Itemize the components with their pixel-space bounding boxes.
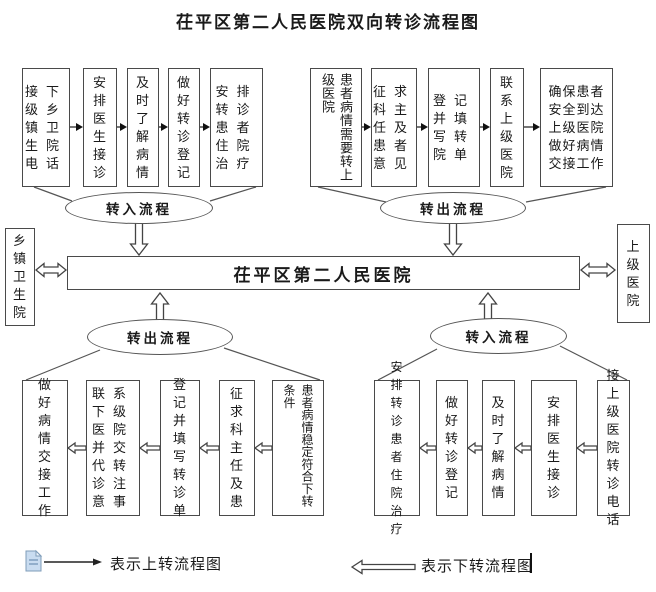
arrow-left-right-icon xyxy=(581,264,615,277)
arrow-down-icon xyxy=(445,223,462,255)
step-receive-upper-call: 接上级医院转诊电话 xyxy=(597,380,630,516)
arrow-left-icon xyxy=(68,443,86,453)
upper-hospital-box: 上级医院 xyxy=(617,224,650,323)
step-referral-register: 做好转诊登记 xyxy=(168,68,200,187)
step-contact-upper-hospital: 联系上级医院 xyxy=(490,68,524,187)
arrow-up-icon xyxy=(152,293,169,320)
step-receive-township-call: 接下级乡镇卫生院电话 xyxy=(22,68,70,187)
step-arrange-doctor: 安排医生接诊 xyxy=(83,68,117,187)
arrow-right-icon xyxy=(93,559,102,566)
arrow-left-icon xyxy=(515,443,531,453)
central-hospital-box: 茌平区第二人民医院 xyxy=(67,256,580,290)
arrow-left-icon xyxy=(200,443,219,453)
arrow-left-icon xyxy=(420,443,436,453)
text-cursor xyxy=(530,553,532,573)
arrow-right-icon xyxy=(203,123,210,131)
arrow-left-icon xyxy=(468,443,482,453)
arrow-right-icon xyxy=(120,123,127,131)
step-arrange-admission-2: 安排转诊患者住院治疗 xyxy=(374,380,420,516)
legend-up-label: 表示上转流程图 xyxy=(110,553,222,574)
step-register-fill-referral: 登记并填写转诊单 xyxy=(160,380,200,516)
step-handover-condition: 做好病情交接工作 xyxy=(22,380,68,516)
arrow-down-icon xyxy=(131,223,148,255)
step-contact-lower-hospital: 联系下级医院并交代转诊注意事 xyxy=(86,380,140,516)
arrow-right-icon xyxy=(161,123,168,131)
arrow-left-icon xyxy=(255,443,272,453)
arrow-up-icon xyxy=(480,293,497,319)
step-arrange-admission: 安排转诊患者住院治疗 xyxy=(210,68,263,187)
step-arrange-doctor-2: 安排医生接诊 xyxy=(531,380,577,516)
step-know-condition: 及时了解病情 xyxy=(127,68,159,187)
step-know-condition-2: 及时了解病情 xyxy=(482,380,515,516)
document-icon xyxy=(26,551,41,571)
step-referral-register-2: 做好转诊登记 xyxy=(436,380,468,516)
arrow-left-icon xyxy=(577,443,597,453)
arrow-left-icon xyxy=(140,443,160,453)
page-title: 茌平区第二人民医院双向转诊流程图 xyxy=(0,8,656,33)
arrow-right-icon xyxy=(76,123,83,131)
arrow-right-icon xyxy=(364,123,371,131)
step-seek-director-patient: 征求科主任及患 xyxy=(219,380,255,516)
arrow-right-icon xyxy=(421,123,428,131)
legend-down-arrow-icon xyxy=(352,561,415,574)
township-health-center-box: 乡镇卫生院 xyxy=(5,228,35,326)
legend-down-label: 表示下转流程图 xyxy=(421,555,533,576)
ellipse-transfer-out-bottom: 转出流程 xyxy=(87,319,233,355)
referral-flowchart: 茌平区第二人民医院双向转诊流程图 接下级乡镇卫生院电话 安排医生接诊 及时了解病… xyxy=(0,0,656,592)
step-condition-stable: 患者病情稳定符合下转条件 xyxy=(272,380,324,516)
step-fill-transfer-form: 登记并填写转院单 xyxy=(428,68,480,187)
arrow-right-icon xyxy=(533,123,540,131)
legend-up-arrow xyxy=(44,559,102,566)
arrow-left-right-icon xyxy=(36,264,66,277)
ellipse-transfer-in-bottom: 转入流程 xyxy=(430,318,567,354)
ellipse-transfer-out-top: 转出流程 xyxy=(380,192,526,224)
step-ensure-safe-handover: 确保患者安全到达上级医院做好病情交接工作 xyxy=(540,68,613,187)
ellipse-transfer-in-top: 转入流程 xyxy=(65,192,213,224)
step-need-transfer-up: 患者病情需要转上级医院 xyxy=(310,68,362,187)
step-seek-opinions: 征求科主任及患者意见 xyxy=(371,68,417,187)
arrow-right-icon xyxy=(483,123,490,131)
